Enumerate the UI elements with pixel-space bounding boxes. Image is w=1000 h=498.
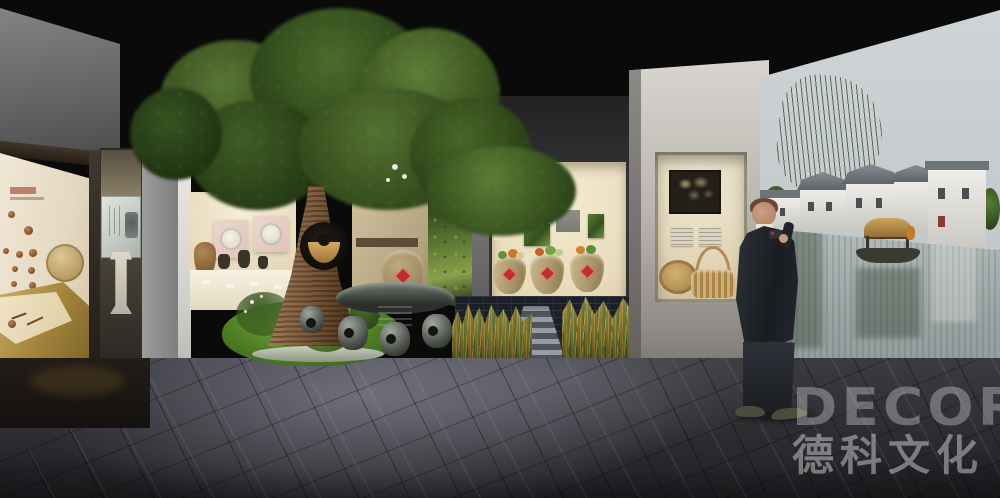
tool-artifact-icon <box>11 312 27 319</box>
woven-winnowing-basket <box>46 244 84 282</box>
artifact-tray <box>0 292 72 344</box>
tall-white-house <box>928 168 986 250</box>
house-roof <box>925 161 989 170</box>
produce <box>586 245 596 254</box>
pickle-jar <box>570 252 604 292</box>
white-blossom <box>402 174 407 179</box>
house-window <box>876 198 882 208</box>
house-window <box>938 188 945 199</box>
jar-red-label <box>540 266 556 282</box>
hat-crown <box>318 234 330 246</box>
white-flower <box>250 300 254 304</box>
photo-flowers <box>671 172 719 212</box>
white-flower <box>244 310 247 313</box>
woven-basket <box>691 270 735 298</box>
artifact-icon <box>8 320 16 328</box>
pickle-jar <box>492 256 526 294</box>
jar-red-label <box>580 264 596 280</box>
artifact-icon <box>24 226 33 235</box>
bronze-pot <box>258 256 268 269</box>
artifact-icon <box>12 266 18 272</box>
framed-photo <box>669 170 721 214</box>
house-reflection <box>932 242 976 322</box>
label-card <box>226 284 234 288</box>
visitor-in-suit <box>733 196 809 422</box>
bronze-pot <box>238 250 250 268</box>
photo-panel <box>588 214 604 238</box>
label-card <box>274 285 282 289</box>
calligraphy-column <box>114 208 115 234</box>
panel-subtitle-mark <box>10 197 44 200</box>
caption-panel <box>671 228 693 246</box>
dark-stone-plaza-floor <box>0 358 1000 498</box>
trouser-leg <box>765 341 795 412</box>
calligraphy-column <box>119 206 120 236</box>
stone-stele <box>110 252 132 314</box>
canopy-blob <box>130 88 222 180</box>
artifact-icon <box>3 248 9 254</box>
artifact-icon <box>11 281 17 287</box>
house-window <box>826 202 832 211</box>
red-lantern <box>938 216 945 227</box>
boat-canopy <box>864 218 912 239</box>
house-window <box>962 188 969 199</box>
pickle-jar <box>530 254 564 294</box>
wooden-canopy-boat <box>856 248 920 263</box>
artifact-icon <box>29 249 37 257</box>
produce <box>498 251 507 259</box>
stone-stool <box>300 306 324 333</box>
stone-stool <box>338 316 368 350</box>
stone-stool <box>422 314 452 348</box>
produce <box>555 249 563 256</box>
produce <box>576 246 585 254</box>
calligraphy-column <box>109 206 110 236</box>
caption-panel <box>699 228 721 246</box>
white-flower <box>260 295 263 298</box>
artifact-icon <box>8 211 15 218</box>
artifact-icon <box>28 267 35 274</box>
produce <box>516 252 524 259</box>
canopy-blob <box>426 146 576 236</box>
boat-reflection <box>856 268 920 338</box>
visitor-hand <box>779 234 788 243</box>
label-card <box>250 282 258 286</box>
produce <box>535 248 544 256</box>
tool-artifact-icon <box>26 316 43 325</box>
wall-corner-edge <box>629 68 641 400</box>
jar-red-label <box>502 267 518 283</box>
label-card <box>202 280 210 284</box>
left-ceiling-plane <box>0 8 120 158</box>
bronze-pot <box>218 254 230 269</box>
house-window <box>856 198 862 208</box>
boatman <box>906 226 915 240</box>
wood-lintel <box>356 238 418 247</box>
white-blossom <box>386 178 390 182</box>
white-blossom <box>392 164 398 170</box>
straw-hat-display <box>300 222 348 270</box>
floor-vignette <box>0 358 1000 498</box>
shoe <box>735 406 765 417</box>
visitor-head <box>752 202 776 226</box>
exhibition-hall-rendering: DECOR 德科文化 <box>0 0 1000 498</box>
stone-stool <box>380 322 410 356</box>
artifact-icon <box>16 251 23 258</box>
panel-title-mark <box>10 187 36 194</box>
